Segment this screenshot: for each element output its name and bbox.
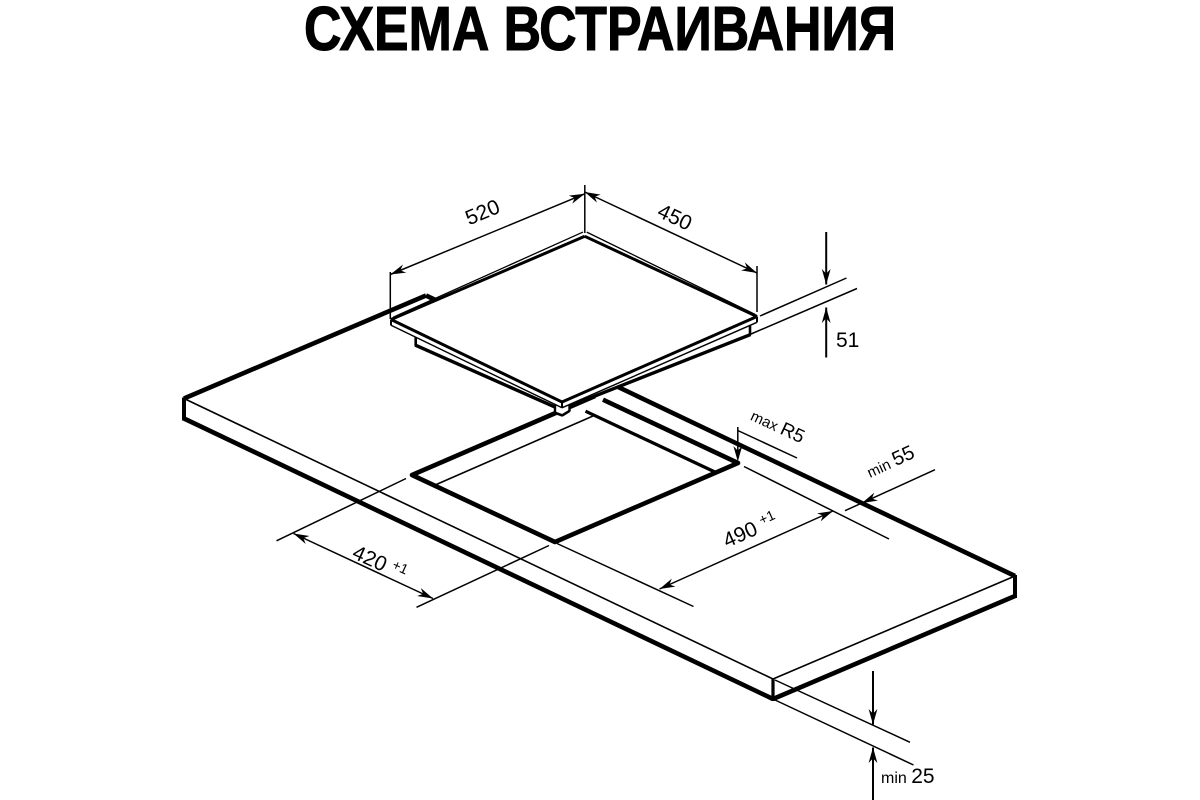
svg-text:СХЕМА ВСТРАИВАНИЯ: СХЕМА ВСТРАИВАНИЯ [304, 0, 896, 64]
svg-text:51: 51 [836, 329, 859, 352]
